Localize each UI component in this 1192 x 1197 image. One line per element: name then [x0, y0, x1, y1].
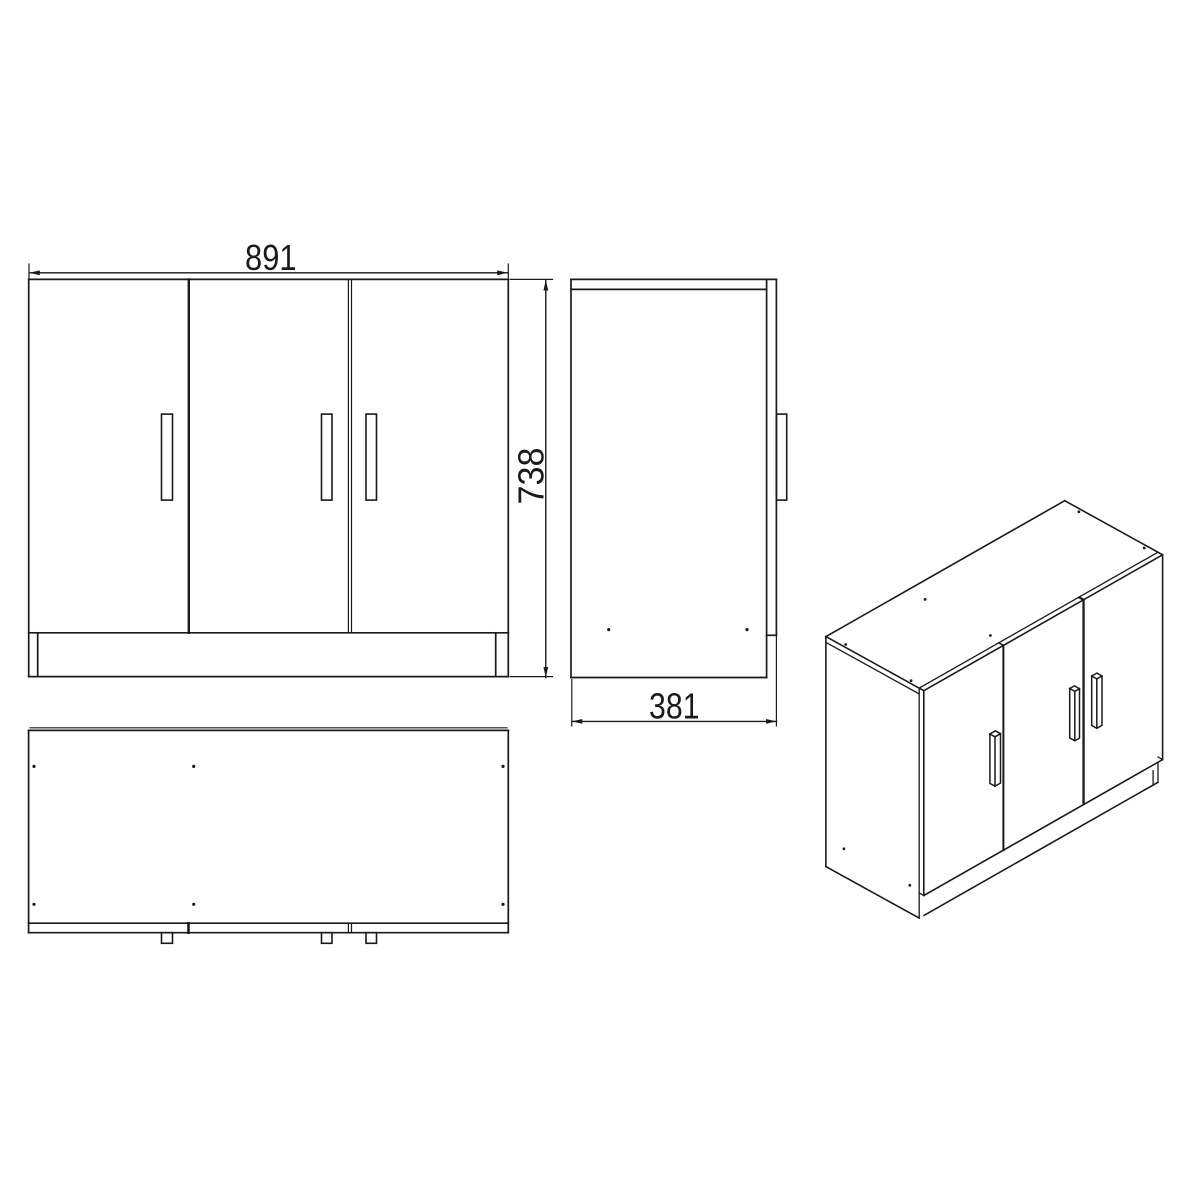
svg-text:381: 381 — [649, 685, 700, 726]
svg-text:891: 891 — [245, 237, 297, 278]
svg-text:738: 738 — [511, 448, 552, 505]
